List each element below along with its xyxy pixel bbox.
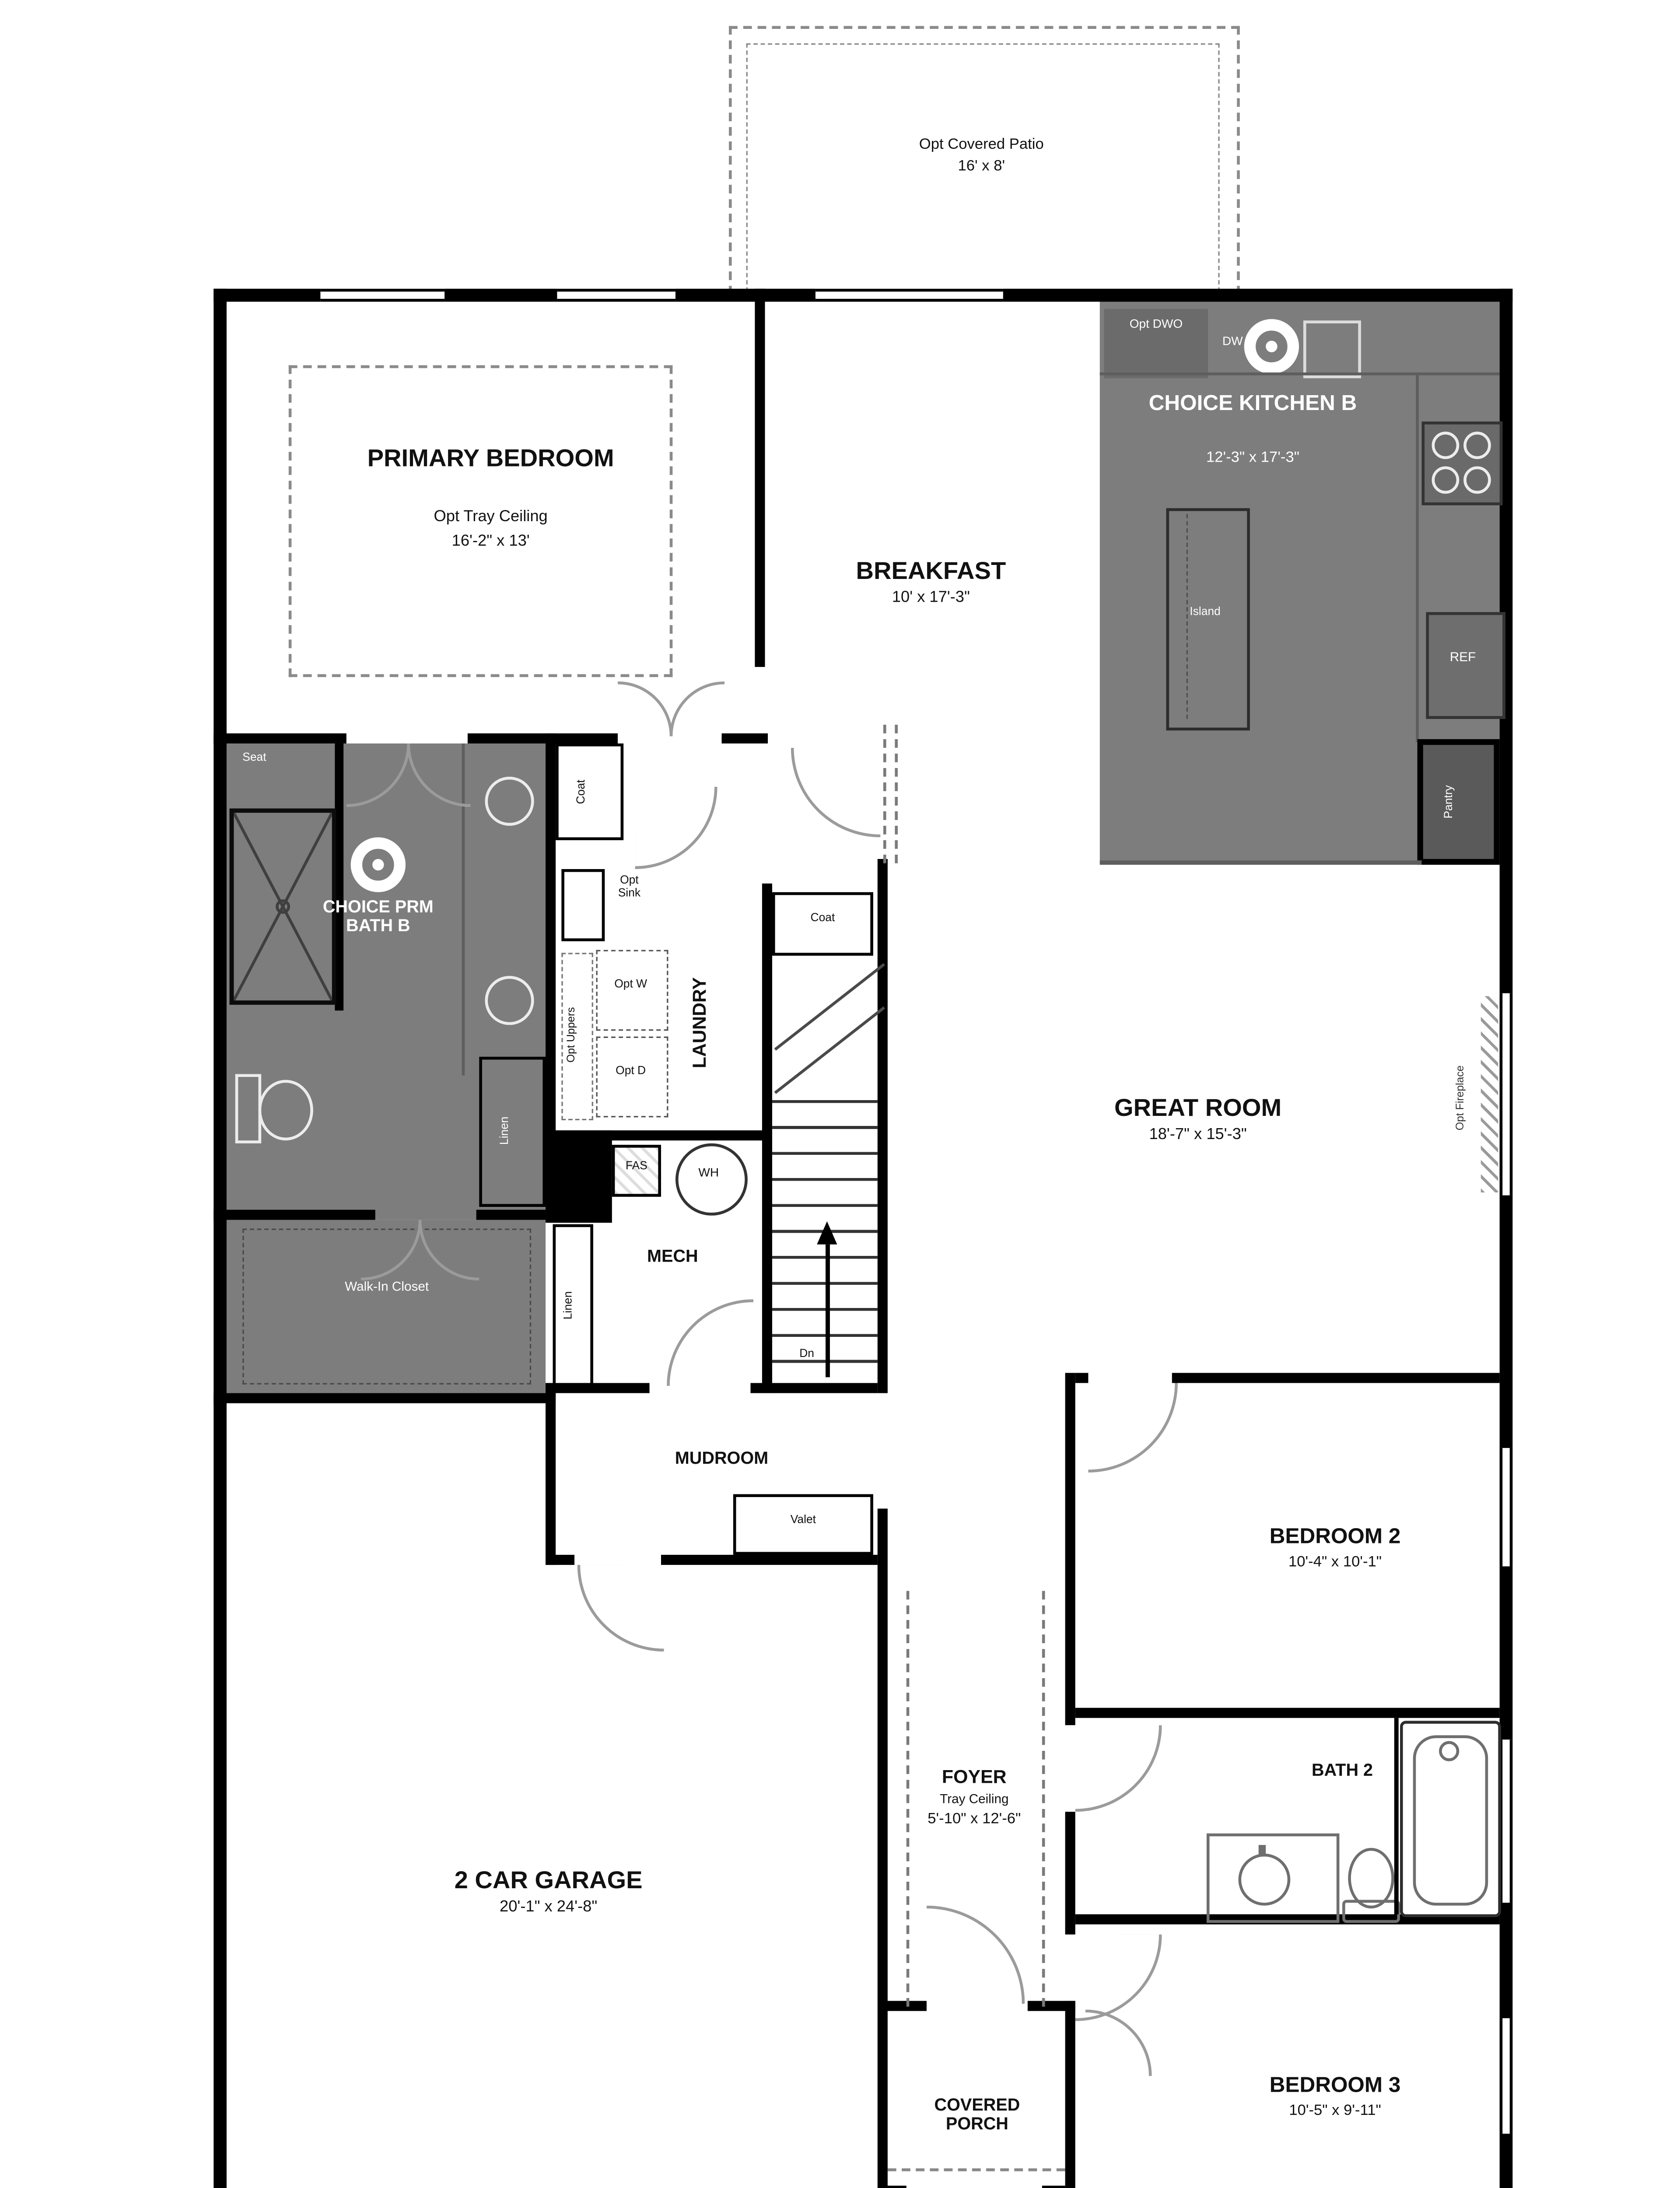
covered-porch-label: COVERED PORCH bbox=[905, 2096, 1049, 2135]
patio-label: Opt Covered Patio bbox=[859, 137, 1104, 154]
wall bbox=[722, 733, 768, 743]
porch-post bbox=[1042, 2186, 1065, 2188]
toilet bbox=[235, 1074, 261, 1143]
wall bbox=[546, 1555, 574, 1565]
wall bbox=[1028, 2001, 1075, 2011]
wall bbox=[878, 859, 888, 1393]
garage-label: 2 CAR GARAGE bbox=[325, 1867, 772, 1894]
great-room-dims: 18'-7" x 15'-3" bbox=[1051, 1126, 1345, 1144]
kitchen-dims: 12'-3" x 17'-3" bbox=[1148, 450, 1358, 467]
stair-arrow-head bbox=[817, 1221, 837, 1245]
window bbox=[1500, 1448, 1513, 1567]
coat-closet-label: Coat bbox=[576, 757, 596, 829]
wall bbox=[1500, 289, 1513, 2188]
wall bbox=[1394, 1718, 1399, 1914]
cooktop-icon bbox=[1422, 421, 1503, 505]
window bbox=[1500, 993, 1513, 1196]
kitchen-sink bbox=[1303, 320, 1361, 378]
wall bbox=[1172, 1373, 1500, 1383]
laundry-opt-sink-label: Opt Sink bbox=[608, 875, 651, 901]
hall-coat-label: Coat bbox=[772, 912, 873, 926]
patio-door bbox=[815, 289, 1003, 302]
door-arc bbox=[1088, 1383, 1178, 1473]
sink bbox=[485, 976, 534, 1025]
wall bbox=[661, 1555, 878, 1565]
bedroom2-dims: 10'-4" x 10'-1" bbox=[1181, 1555, 1490, 1572]
stair-break-line bbox=[774, 963, 885, 1051]
front-door-arc bbox=[927, 1906, 1025, 2004]
bedroom2-label: BEDROOM 2 bbox=[1181, 1526, 1490, 1550]
mech-label: MECH bbox=[618, 1247, 728, 1266]
wall bbox=[213, 1393, 556, 1403]
fireplace-hatch bbox=[1481, 996, 1498, 1192]
great-room-opt-fireplace-label: Opt Fireplace bbox=[1455, 1008, 1475, 1187]
counter-line bbox=[1416, 372, 1419, 742]
kitchen-island bbox=[1166, 508, 1250, 730]
wall bbox=[1065, 2018, 1075, 2188]
window bbox=[1500, 1739, 1513, 1903]
wall bbox=[546, 1130, 612, 1223]
sink bbox=[1239, 1854, 1291, 1906]
bath-linen-label: Linen bbox=[499, 1080, 519, 1181]
ceiling-break bbox=[895, 725, 898, 863]
counter-edge bbox=[1100, 860, 1422, 865]
toilet-bowl bbox=[259, 1080, 313, 1141]
laundry-opt-d-label: Opt D bbox=[596, 1066, 665, 1079]
laundry-opt-w-label: Opt W bbox=[596, 979, 665, 992]
patio-dims: 16' x 8' bbox=[859, 159, 1104, 176]
mudroom-valet-label: Valet bbox=[733, 1515, 873, 1528]
counter-line bbox=[1100, 372, 1500, 375]
wall bbox=[468, 733, 618, 743]
door-arc bbox=[667, 1299, 753, 1386]
wall bbox=[750, 1383, 877, 1393]
mech-wh-label: WH bbox=[675, 1167, 742, 1180]
door-arc bbox=[635, 787, 717, 869]
bullseye-icon bbox=[1244, 319, 1299, 374]
door-arc bbox=[577, 1565, 664, 1652]
refrigerator bbox=[1426, 612, 1505, 719]
ceiling-break bbox=[883, 725, 886, 863]
walk-in-closet-label: Walk-In Closet bbox=[336, 1279, 437, 1294]
window bbox=[320, 289, 444, 302]
floor-plan: Opt Covered Patio 16' x 8' bbox=[0, 0, 1680, 2188]
laundry-opt-uppers-label: Opt Uppers bbox=[566, 961, 586, 1108]
wall bbox=[1075, 1373, 1088, 1383]
mech-fas-label: FAS bbox=[612, 1161, 661, 1174]
stair-break-line bbox=[774, 1006, 885, 1094]
breakfast-dims: 10' x 17'-3" bbox=[808, 589, 1053, 607]
bath2-label: BATH 2 bbox=[1282, 1761, 1403, 1781]
wall bbox=[878, 1508, 888, 2188]
primary-bedroom-dims: 16'-2" x 13' bbox=[332, 533, 650, 551]
wall bbox=[1065, 1373, 1075, 1725]
window bbox=[557, 289, 675, 302]
foyer-option: Tray Ceiling bbox=[902, 1792, 1046, 1806]
wall bbox=[546, 733, 556, 1140]
door-arc bbox=[1075, 1725, 1162, 1812]
wall bbox=[476, 1210, 546, 1220]
bath-seat-label: Seat bbox=[231, 752, 306, 765]
door-arc bbox=[1085, 2009, 1152, 2076]
porch-post bbox=[883, 2186, 906, 2188]
door-arc bbox=[618, 681, 672, 736]
wall bbox=[762, 884, 772, 1393]
wall bbox=[213, 733, 346, 743]
wall bbox=[755, 289, 765, 667]
door-arc bbox=[670, 681, 724, 736]
prm-bath-label: CHOICE PRM BATH B bbox=[320, 898, 436, 937]
door-arc bbox=[791, 748, 881, 838]
laundry-label: LAUNDRY bbox=[690, 921, 722, 1123]
wall bbox=[546, 1383, 556, 1565]
wall bbox=[213, 289, 227, 2188]
door-arc bbox=[1075, 1935, 1162, 2021]
wall bbox=[1065, 1812, 1075, 1934]
kitchen-opt-dwo: Opt DWO bbox=[1104, 318, 1208, 331]
tub-faucet bbox=[1439, 1741, 1459, 1761]
porch-dashed-line bbox=[888, 2168, 1065, 2171]
window bbox=[1500, 2018, 1513, 2134]
foyer-dims: 5'-10" x 12'-6" bbox=[885, 1812, 1064, 1829]
stair-arrow-line bbox=[826, 1245, 830, 1378]
primary-bedroom-option: Opt Tray Ceiling bbox=[332, 508, 650, 526]
wall bbox=[213, 1210, 375, 1220]
mudroom-label: MUDROOM bbox=[613, 1449, 830, 1469]
mech-linen-label: Linen bbox=[563, 1253, 583, 1357]
opt-sink-box bbox=[561, 869, 605, 941]
wall bbox=[1075, 1708, 1500, 1718]
primary-bedroom-label: PRIMARY BEDROOM bbox=[332, 445, 650, 472]
bullseye-icon bbox=[351, 837, 406, 892]
breakfast-label: BREAKFAST bbox=[808, 557, 1053, 585]
kitchen-island-label: Island bbox=[1166, 607, 1244, 620]
kitchen-ref-label: REF bbox=[1426, 650, 1499, 664]
wall bbox=[883, 2001, 927, 2011]
garage-dims: 20'-1" x 24'-8" bbox=[325, 1898, 772, 1916]
sink bbox=[485, 777, 534, 826]
foyer-label: FOYER bbox=[902, 1767, 1046, 1788]
great-room-label: GREAT ROOM bbox=[1051, 1094, 1345, 1122]
toilet bbox=[1342, 1900, 1400, 1923]
bedroom3-dims: 10'-5" x 9'-11" bbox=[1181, 2104, 1490, 2121]
kitchen-label: CHOICE KITCHEN B bbox=[1148, 393, 1358, 417]
kitchen-pantry-label: Pantry bbox=[1443, 754, 1466, 849]
stairs-dn-label: Dn bbox=[788, 1348, 826, 1361]
faucet bbox=[1259, 1845, 1266, 1856]
bedroom3-label: BEDROOM 3 bbox=[1181, 2075, 1490, 2099]
